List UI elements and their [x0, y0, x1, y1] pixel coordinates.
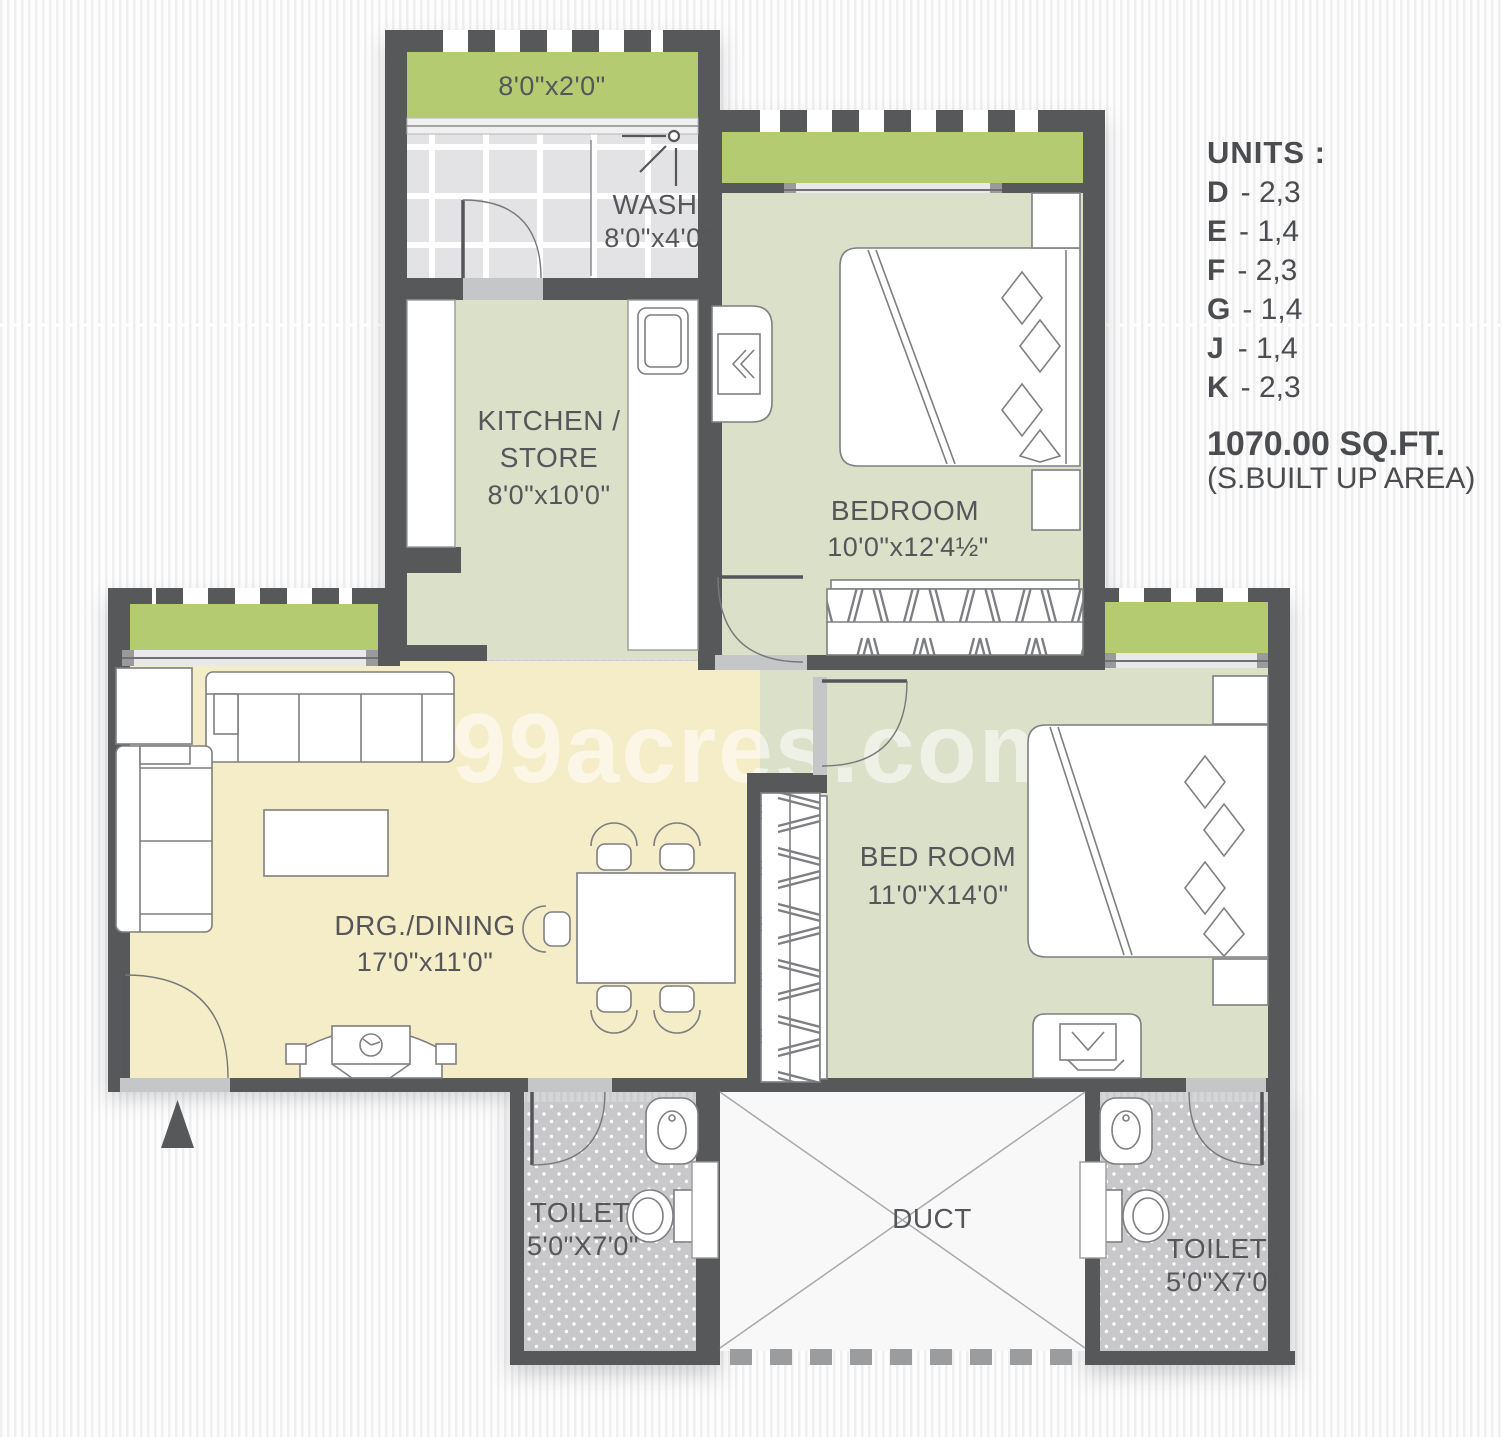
nightstand	[1032, 193, 1080, 248]
tv-unit-bedroom-top	[712, 306, 772, 422]
bedroom-bottom-window	[1105, 653, 1268, 668]
bedroom-bottom-balcony-floor	[1105, 602, 1268, 653]
living-balcony-floor	[122, 604, 378, 650]
units-item: F- 2,3	[1207, 254, 1297, 287]
built-up-area-note: (S.BUILT UP AREA)	[1207, 462, 1475, 495]
dining-table	[577, 873, 735, 983]
floorplan-canvas: 99acres.com	[0, 0, 1502, 1437]
living-balcony-window	[122, 650, 378, 666]
units-item: G- 1,4	[1207, 293, 1302, 326]
washbasin-right-toilet	[1100, 1098, 1152, 1164]
kitchen-label-line2: STORE	[500, 442, 598, 473]
balcony-top-railing	[435, 30, 663, 52]
kitchen-label-line1: KITCHEN /	[478, 405, 621, 436]
toilet-left-label: TOILET	[530, 1197, 631, 1228]
bedroom-top-window	[784, 183, 1002, 193]
living-balcony-railing	[152, 588, 352, 604]
bedroom-top-label: BEDROOM	[831, 495, 979, 526]
wash-dim: 8'0"x4'0"	[604, 223, 712, 253]
wc-right-toilet	[1100, 1190, 1169, 1242]
bedroom-bottom-dim: 11'0"X14'0"	[867, 880, 1008, 910]
units-item: D- 2,3	[1207, 176, 1301, 209]
bed-bottom-bedroom	[1028, 725, 1268, 957]
bedroom-bottom-label: BED ROOM	[860, 841, 1016, 872]
sofa-three-seat	[206, 672, 454, 762]
wash-label: WASH	[613, 189, 698, 220]
drg-dining-label: DRG./DINING	[334, 910, 515, 941]
kitchen-sink-icon	[638, 308, 688, 374]
nightstand	[1213, 676, 1268, 724]
units-item: J- 1,4	[1207, 332, 1298, 365]
coffee-table	[264, 810, 388, 876]
corner-table	[116, 668, 192, 744]
drg-dining-dim: 17'0"x11'0"	[357, 947, 494, 977]
toilet-left-dim: 5'0"X7'0"	[527, 1231, 639, 1261]
nightstand	[1213, 959, 1268, 1005]
wash-window	[407, 118, 698, 134]
kitchen-dim: 8'0"x10'0"	[487, 480, 610, 510]
duct-label: DUCT	[892, 1203, 972, 1234]
bed-top-bedroom	[840, 248, 1080, 466]
wardrobe-bedroom-bottom	[761, 793, 827, 1082]
kitchen-platform	[407, 300, 455, 547]
toilet-right-label: TOILET	[1167, 1233, 1268, 1264]
toilet-left-shaft	[692, 1162, 718, 1258]
units-item: E- 1,4	[1207, 215, 1299, 248]
sofa-two-seat	[116, 746, 212, 932]
washbasin-left-toilet	[646, 1098, 698, 1164]
toilet-right-shaft	[1080, 1162, 1106, 1258]
built-up-area: 1070.00 SQ.FT.	[1207, 425, 1445, 463]
toilet-right-dim: 5'0"X7'0"	[1166, 1267, 1278, 1297]
bedroom-bottom-balcony-railing	[1105, 588, 1251, 602]
units-item: K- 2,3	[1207, 371, 1301, 404]
units-heading: UNITS :	[1207, 135, 1326, 170]
bedroom-top-balcony-railing	[760, 110, 1038, 132]
balcony-top-dim: 8'0"x2'0"	[498, 71, 606, 101]
bedroom-top-dim: 10'0"x12'4½"	[827, 532, 989, 562]
nightstand	[1032, 470, 1080, 530]
dresser-bedroom-bottom	[1033, 1014, 1141, 1078]
bedroom-top-balcony-floor	[722, 132, 1083, 183]
floorplan-svg: 99acres.com	[0, 0, 1502, 1437]
wardrobe-bedroom-top	[827, 580, 1083, 655]
